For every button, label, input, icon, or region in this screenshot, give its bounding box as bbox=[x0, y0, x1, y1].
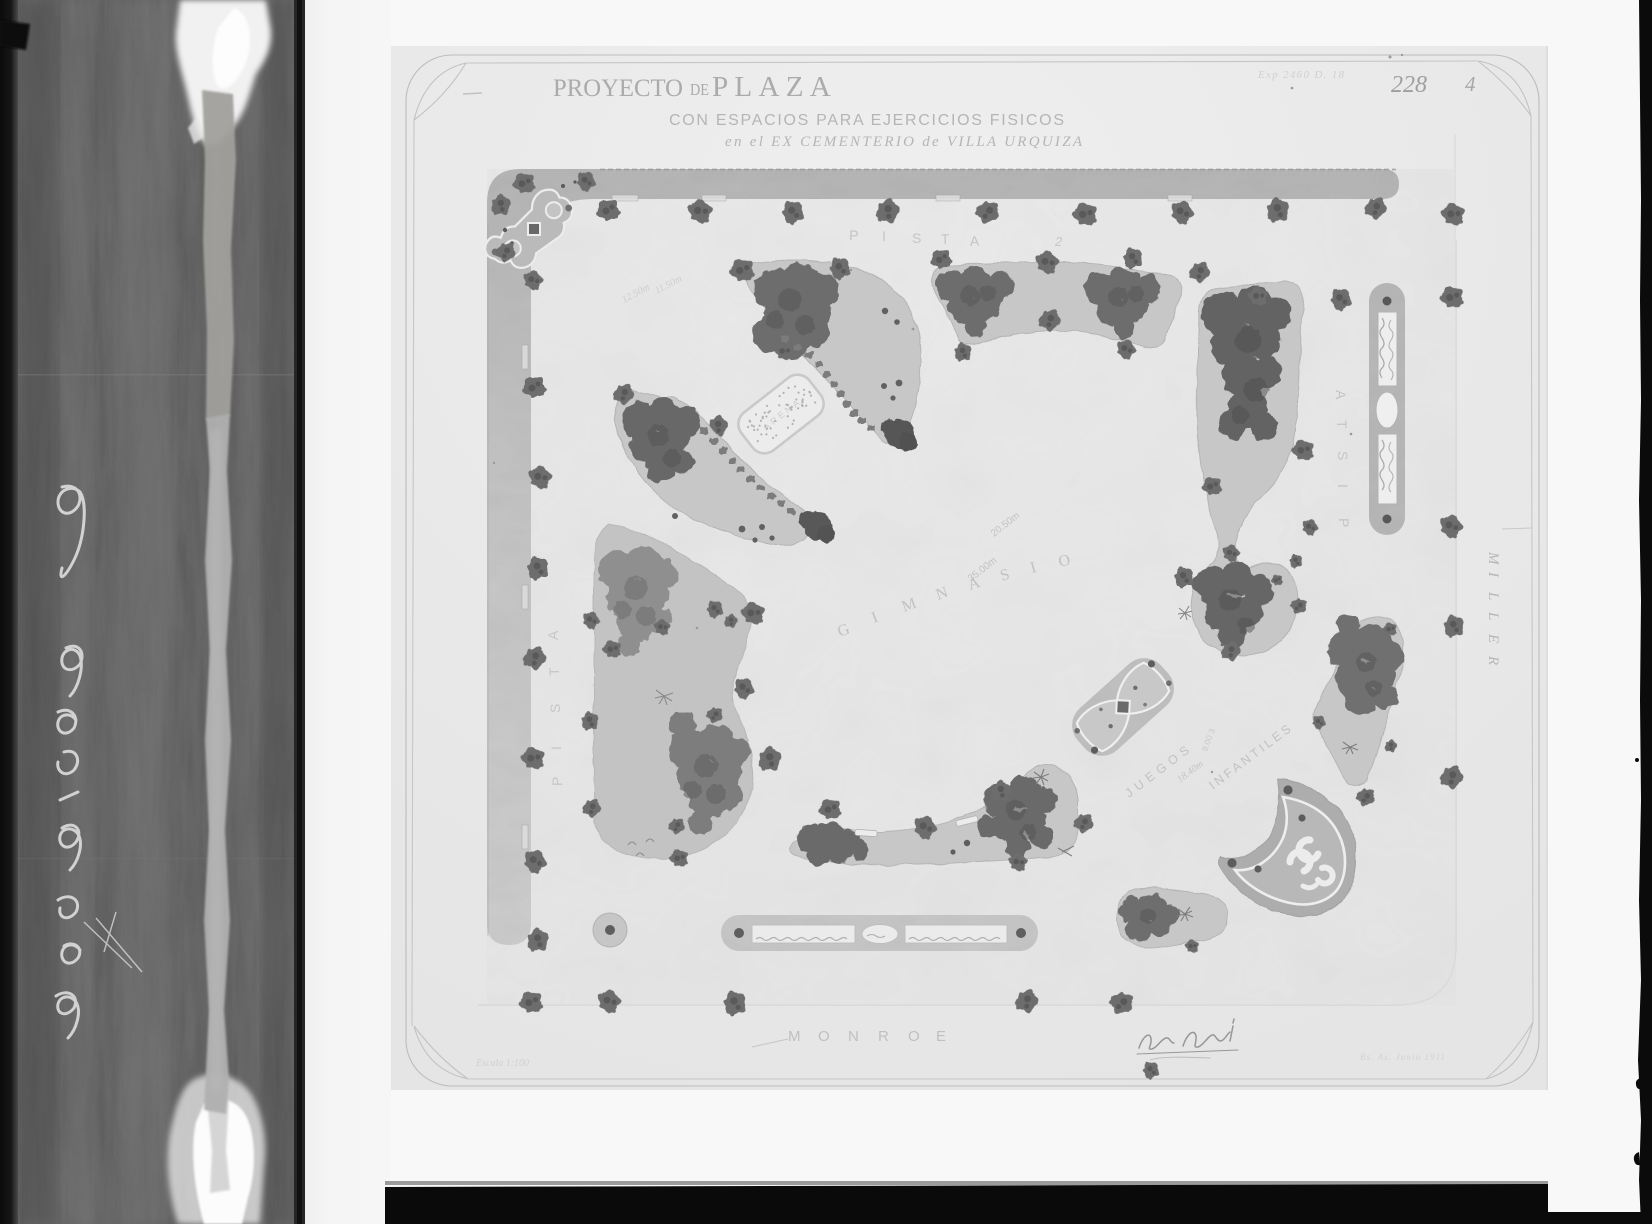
svg-text:I: I bbox=[1485, 571, 1501, 578]
svg-text:DE: DE bbox=[690, 80, 709, 99]
svg-text:T: T bbox=[1334, 420, 1350, 429]
svg-text:S: S bbox=[912, 230, 921, 246]
svg-text:P: P bbox=[1336, 518, 1352, 527]
svg-text:M: M bbox=[788, 1028, 801, 1045]
svg-text:A: A bbox=[1333, 390, 1349, 400]
svg-text:P: P bbox=[849, 227, 859, 243]
svg-text:O: O bbox=[818, 1028, 830, 1045]
svg-text:R: R bbox=[1485, 655, 1501, 665]
svg-text:Escala 1:100: Escala 1:100 bbox=[475, 1058, 529, 1069]
svg-text:2: 2 bbox=[1054, 234, 1063, 249]
svg-text:M: M bbox=[1485, 551, 1501, 566]
svg-text:T: T bbox=[941, 231, 950, 247]
svg-text:T: T bbox=[546, 667, 562, 676]
svg-text:R: R bbox=[878, 1028, 889, 1045]
svg-text:A: A bbox=[970, 233, 981, 249]
svg-text:PROYECTO: PROYECTO bbox=[553, 75, 683, 102]
svg-text:Exp 2460 D. 18: Exp 2460 D. 18 bbox=[1257, 69, 1345, 81]
svg-text:L: L bbox=[1485, 611, 1501, 620]
svg-text:A: A bbox=[545, 630, 561, 640]
svg-text:E: E bbox=[936, 1028, 946, 1045]
svg-text:Bs. As. Junio 1911: Bs. As. Junio 1911 bbox=[1360, 1052, 1445, 1062]
svg-text:O: O bbox=[908, 1028, 920, 1045]
svg-text:I: I bbox=[882, 228, 886, 244]
svg-text:I: I bbox=[1335, 484, 1351, 488]
svg-text:E: E bbox=[1485, 633, 1501, 643]
svg-text:4: 4 bbox=[1465, 72, 1476, 96]
svg-text:S: S bbox=[547, 704, 563, 713]
svg-text:S: S bbox=[1335, 451, 1351, 460]
svg-text:L: L bbox=[1485, 591, 1501, 600]
svg-text:I: I bbox=[548, 746, 564, 750]
svg-text:PLAZA: PLAZA bbox=[712, 72, 837, 103]
svg-text:CON ESPACIOS PARA EJERCICIOS F: CON ESPACIOS PARA EJERCICIOS FISICOS bbox=[669, 112, 1064, 129]
svg-text:P: P bbox=[549, 777, 565, 786]
svg-text:N: N bbox=[848, 1028, 859, 1045]
svg-text:228: 228 bbox=[1391, 72, 1427, 98]
svg-text:en el EX CEMENTERIO de VILLA U: en el EX CEMENTERIO de VILLA URQUIZA bbox=[725, 134, 1083, 150]
